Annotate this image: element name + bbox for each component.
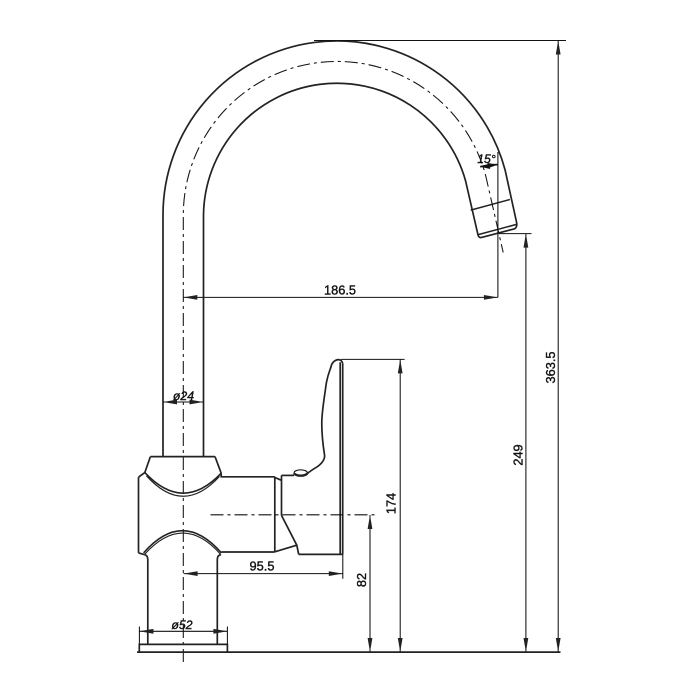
svg-text:363.5: 363.5 xyxy=(543,351,558,383)
svg-text:95.5: 95.5 xyxy=(250,559,275,574)
svg-text:249: 249 xyxy=(511,444,526,465)
svg-text:15°: 15° xyxy=(477,152,496,166)
svg-text:174: 174 xyxy=(384,493,399,514)
svg-text:ø24: ø24 xyxy=(173,389,194,403)
svg-text:186.5: 186.5 xyxy=(324,283,356,298)
svg-text:82: 82 xyxy=(354,573,369,587)
svg-text:ø52: ø52 xyxy=(171,618,192,632)
